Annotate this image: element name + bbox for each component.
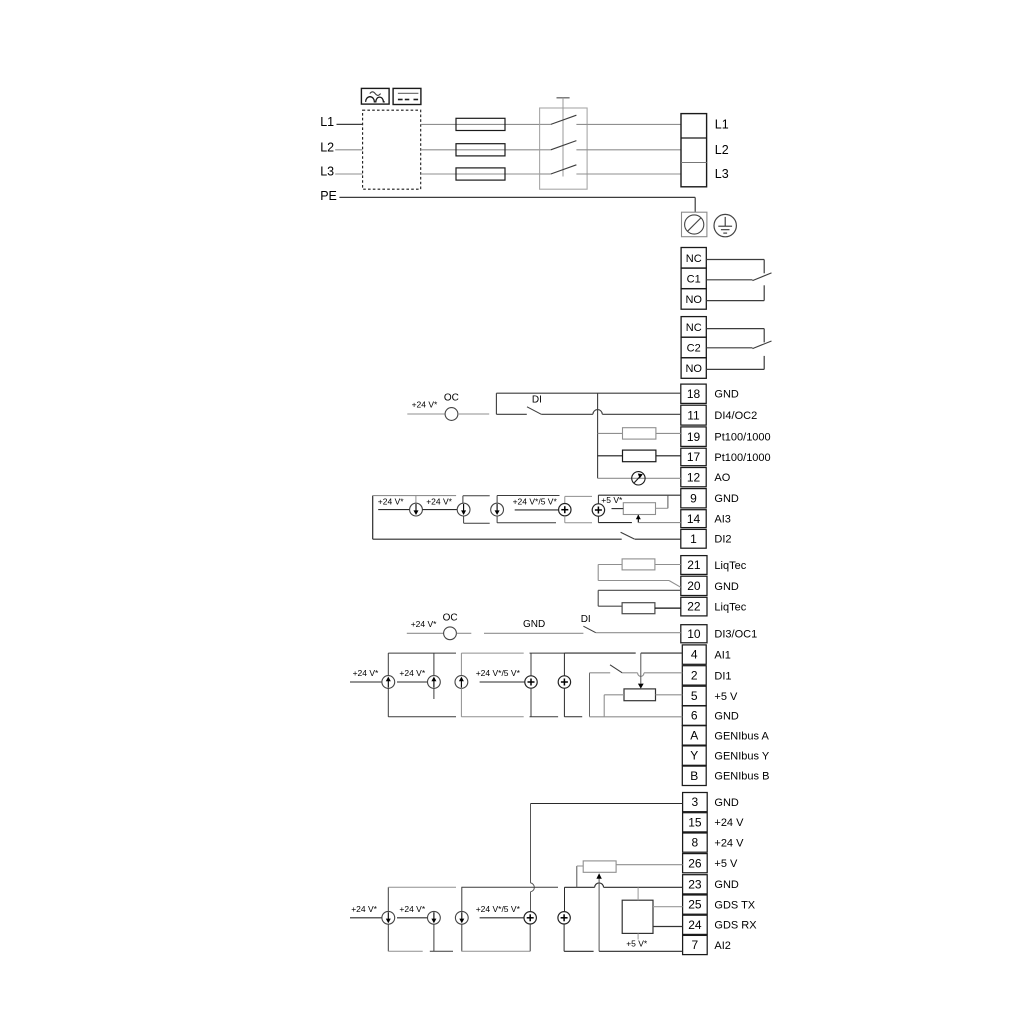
svg-text:L1: L1 <box>320 115 334 129</box>
svg-text:+24 V: +24 V <box>714 838 744 850</box>
svg-text:21: 21 <box>687 558 701 572</box>
svg-text:+5 V: +5 V <box>714 858 738 870</box>
svg-text:GENIbus A: GENIbus A <box>714 730 769 742</box>
svg-text:AI2: AI2 <box>714 940 731 952</box>
svg-text:26: 26 <box>688 856 702 870</box>
svg-text:L2: L2 <box>715 143 729 157</box>
svg-text:GND: GND <box>714 493 739 505</box>
svg-text:14: 14 <box>687 512 701 526</box>
svg-text:GENIbus B: GENIbus B <box>714 771 769 783</box>
svg-text:4: 4 <box>691 648 698 662</box>
svg-text:+24 V*: +24 V* <box>411 619 437 629</box>
svg-text:DI3/OC1: DI3/OC1 <box>714 629 757 641</box>
svg-text:11: 11 <box>687 408 700 422</box>
svg-text:L2: L2 <box>320 140 334 154</box>
svg-text:18: 18 <box>687 387 701 401</box>
svg-text:22: 22 <box>687 600 701 614</box>
svg-text:+24 V*/5 V*: +24 V*/5 V* <box>476 904 521 914</box>
svg-text:8: 8 <box>692 836 699 850</box>
svg-text:C1: C1 <box>687 273 701 285</box>
svg-text:DI2: DI2 <box>714 534 731 546</box>
svg-text:+24 V*: +24 V* <box>399 668 425 678</box>
svg-text:NO: NO <box>685 363 702 375</box>
svg-text:DI: DI <box>532 395 542 406</box>
svg-text:Pt100/1000: Pt100/1000 <box>714 432 770 444</box>
svg-text:GDS RX: GDS RX <box>714 920 757 932</box>
svg-text:5: 5 <box>691 689 698 703</box>
svg-text:OC: OC <box>443 612 458 623</box>
svg-text:3: 3 <box>692 795 699 809</box>
svg-text:+24 V*: +24 V* <box>353 668 379 678</box>
svg-text:DI1: DI1 <box>714 670 731 682</box>
svg-text:+24 V*: +24 V* <box>412 400 438 410</box>
svg-text:L3: L3 <box>715 167 729 181</box>
svg-text:L1: L1 <box>715 117 729 131</box>
svg-text:+24 V*/5 V*: +24 V*/5 V* <box>476 668 521 678</box>
svg-text:NC: NC <box>686 253 702 265</box>
svg-text:DI: DI <box>581 614 591 625</box>
svg-text:+5 V: +5 V <box>714 691 738 703</box>
svg-text:+5 V*: +5 V* <box>626 938 648 948</box>
svg-text:GND: GND <box>714 581 739 593</box>
svg-text:GENIbus Y: GENIbus Y <box>714 751 769 763</box>
svg-text:24: 24 <box>688 918 702 932</box>
svg-text:GND: GND <box>714 711 739 723</box>
svg-text:LiqTec: LiqTec <box>714 560 746 572</box>
svg-text:C2: C2 <box>687 342 701 354</box>
svg-text:LiqTec: LiqTec <box>714 602 746 614</box>
svg-text:20: 20 <box>687 579 701 593</box>
svg-text:25: 25 <box>688 898 702 912</box>
svg-text:OC: OC <box>444 393 459 404</box>
svg-text:PE: PE <box>320 189 337 203</box>
svg-text:+24 V*: +24 V* <box>426 496 452 506</box>
svg-text:+24 V: +24 V <box>714 817 744 829</box>
svg-text:15: 15 <box>688 815 702 829</box>
svg-text:1: 1 <box>690 532 697 546</box>
svg-text:23: 23 <box>688 877 702 891</box>
svg-text:17: 17 <box>687 450 701 464</box>
svg-text:GND: GND <box>714 389 739 401</box>
svg-text:B: B <box>690 769 698 783</box>
svg-text:+5 V*: +5 V* <box>601 495 623 505</box>
svg-text:Y: Y <box>690 749 698 763</box>
svg-text:2: 2 <box>691 669 698 683</box>
svg-text:GDS TX: GDS TX <box>714 900 755 912</box>
svg-text:19: 19 <box>687 430 701 444</box>
svg-text:L3: L3 <box>320 165 334 179</box>
svg-text:6: 6 <box>691 709 698 723</box>
svg-text:+24 V*: +24 V* <box>378 496 404 506</box>
svg-text:GND: GND <box>523 619 545 630</box>
svg-text:+24 V*: +24 V* <box>351 904 377 914</box>
svg-text:GND: GND <box>714 797 739 809</box>
svg-text:9: 9 <box>690 491 697 505</box>
svg-text:12: 12 <box>687 470 701 484</box>
svg-text:AI1: AI1 <box>714 650 731 662</box>
svg-text:Pt100/1000: Pt100/1000 <box>714 452 770 464</box>
svg-text:DI4/OC2: DI4/OC2 <box>714 410 757 422</box>
svg-text:+24 V*/5 V*: +24 V*/5 V* <box>513 496 558 506</box>
svg-text:10: 10 <box>687 627 701 641</box>
svg-text:A: A <box>690 729 698 743</box>
svg-text:NO: NO <box>685 294 702 306</box>
svg-text:7: 7 <box>692 938 699 952</box>
svg-text:+24 V*: +24 V* <box>399 904 425 914</box>
svg-text:AO: AO <box>714 472 730 484</box>
svg-text:AI3: AI3 <box>714 514 731 526</box>
svg-text:GND: GND <box>714 879 739 891</box>
svg-text:NC: NC <box>686 322 702 334</box>
